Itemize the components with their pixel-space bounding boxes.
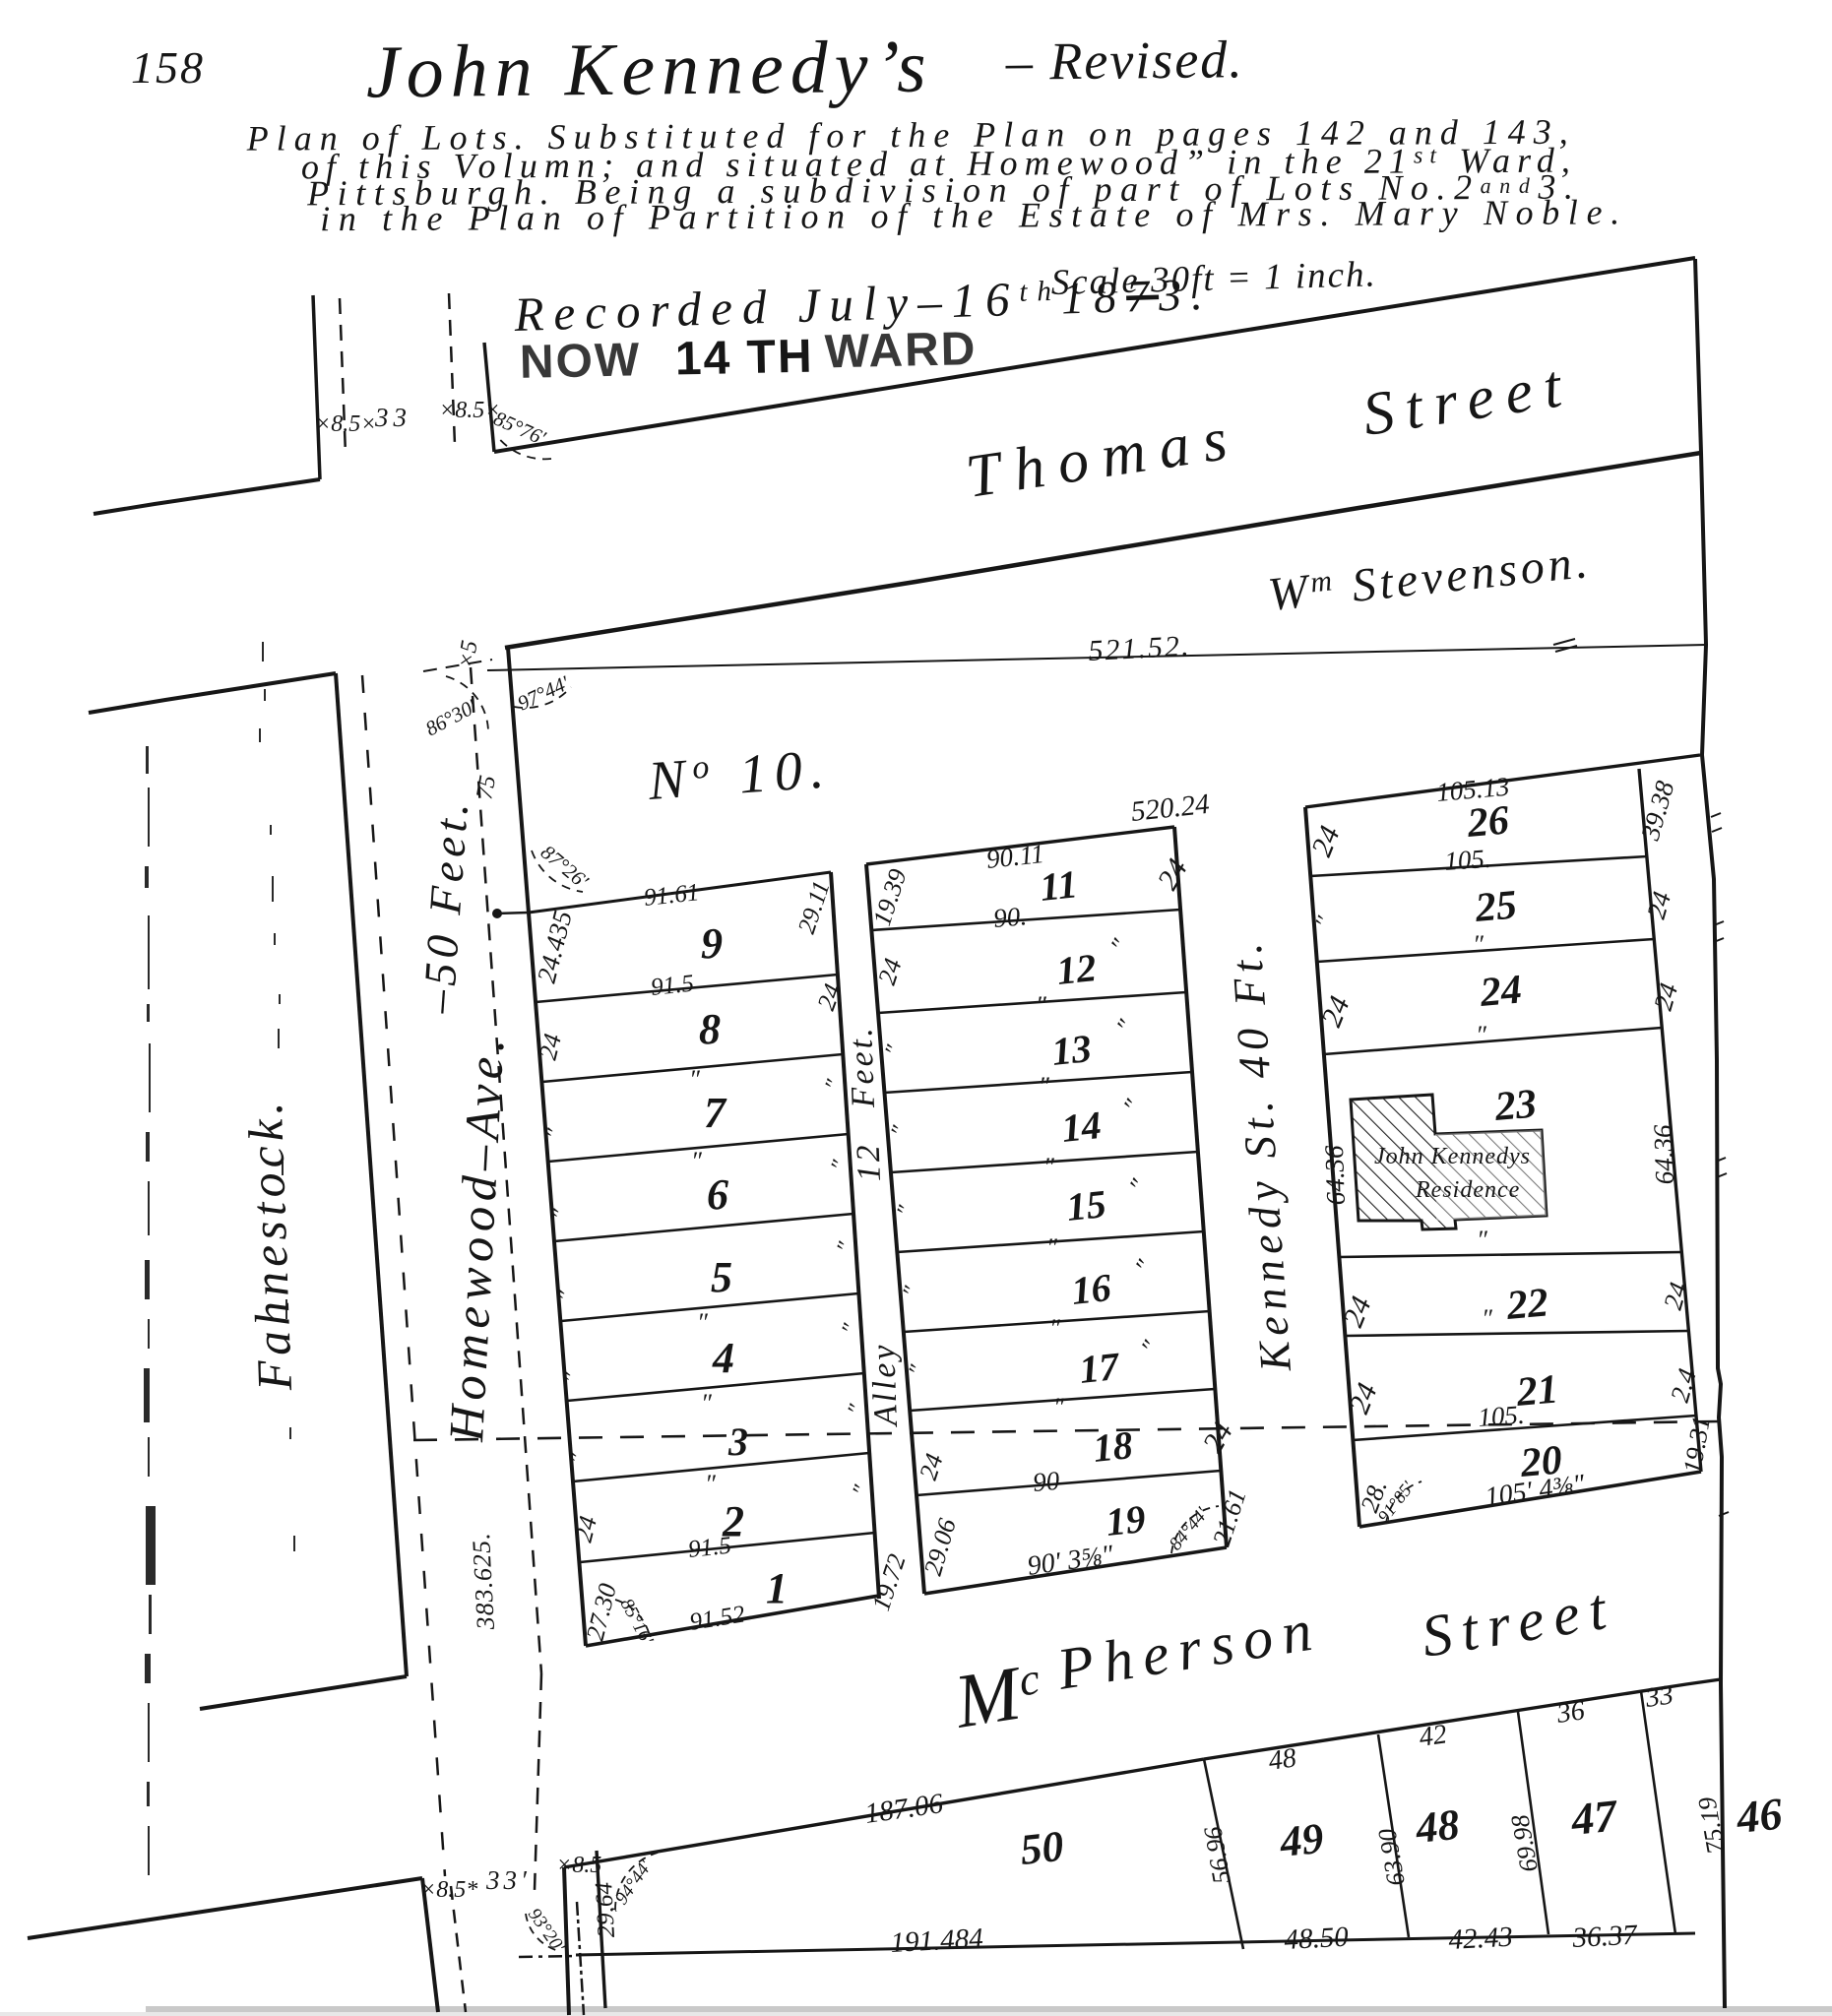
svg-text:×8.5*: ×8.5* — [420, 1877, 477, 1903]
svg-text:3: 3 — [727, 1419, 748, 1464]
svg-text:105.: 105. — [1477, 1400, 1525, 1432]
svg-text:33: 33 — [1643, 1679, 1675, 1714]
svg-text:158: 158 — [131, 42, 205, 93]
svg-text:90.: 90. — [992, 901, 1028, 933]
svg-text:5: 5 — [711, 1253, 732, 1301]
svg-text:17: 17 — [1077, 1344, 1122, 1392]
svg-text:×8.5×: ×8.5× — [315, 411, 376, 437]
svg-text:48: 48 — [1267, 1742, 1298, 1777]
svg-text:90.11: 90.11 — [984, 839, 1045, 874]
svg-text:46: 46 — [1734, 1788, 1785, 1843]
svg-text:13: 13 — [1049, 1026, 1093, 1074]
svg-text:1: 1 — [766, 1564, 788, 1612]
svg-text:33′: 33′ — [485, 1865, 531, 1895]
svg-text:John Kennedy’s: John Kennedy’s — [365, 26, 933, 114]
svg-text:383.625.: 383.625. — [467, 1532, 500, 1631]
svg-text:14: 14 — [1059, 1102, 1103, 1151]
svg-text:NOW: NOW — [519, 334, 641, 389]
svg-text:47: 47 — [1568, 1790, 1621, 1845]
svg-text:36: 36 — [1554, 1695, 1587, 1730]
svg-text:42.43: 42.43 — [1448, 1921, 1514, 1956]
svg-text:36.37: 36.37 — [1571, 1920, 1639, 1955]
svg-text:26: 26 — [1465, 797, 1511, 847]
svg-text:48: 48 — [1413, 1800, 1462, 1853]
svg-text:″: ″ — [1046, 1233, 1058, 1262]
svg-text:16: 16 — [1069, 1265, 1112, 1313]
svg-text:49: 49 — [1277, 1814, 1326, 1866]
svg-text:John Kennedys: John Kennedys — [1374, 1144, 1531, 1169]
svg-text:Fahnestock.: Fahnestock. — [237, 1097, 302, 1393]
svg-text:″: ″ — [1053, 1393, 1065, 1421]
svg-text:4: 4 — [712, 1334, 734, 1382]
svg-text:″: ″ — [1482, 1304, 1493, 1333]
svg-text:″: ″ — [705, 1470, 717, 1498]
svg-text:Alley: Alley — [865, 1342, 905, 1428]
svg-text:22: 22 — [1504, 1280, 1550, 1329]
svg-text:″: ″ — [701, 1389, 713, 1417]
svg-text:25: 25 — [1473, 882, 1519, 931]
svg-text:×5: ×5 — [453, 639, 483, 670]
svg-text:″: ″ — [1473, 930, 1485, 959]
svg-text:14 TH: 14 TH — [674, 331, 814, 386]
svg-text:11: 11 — [1038, 861, 1079, 910]
svg-text:″: ″ — [1476, 1021, 1487, 1049]
svg-text:23: 23 — [1492, 1081, 1539, 1130]
svg-text:64.36: 64.36 — [1319, 1145, 1351, 1206]
svg-text:″: ″ — [1043, 1153, 1055, 1181]
svg-text:33: 33 — [374, 403, 411, 432]
svg-text:19: 19 — [1104, 1496, 1147, 1544]
svg-text:9: 9 — [701, 919, 723, 968]
svg-text:191.484: 191.484 — [890, 1922, 984, 1959]
svg-text:50: 50 — [1018, 1822, 1066, 1874]
svg-text:12: 12 — [851, 1142, 888, 1182]
svg-text:6: 6 — [707, 1170, 728, 1219]
svg-text:15: 15 — [1064, 1181, 1107, 1229]
svg-text:″: ″ — [1477, 1226, 1488, 1254]
svg-text:Feet.: Feet. — [843, 1025, 882, 1109]
svg-text:″: ″ — [1049, 1314, 1061, 1343]
svg-text:– Revised.: – Revised. — [1005, 30, 1245, 92]
svg-text:42: 42 — [1418, 1719, 1449, 1753]
svg-text:24: 24 — [1478, 967, 1524, 1016]
svg-text:″: ″ — [691, 1147, 703, 1175]
svg-text:29,64: 29,64 — [591, 1882, 620, 1939]
svg-text:7: 7 — [704, 1089, 727, 1137]
svg-text:48.50: 48.50 — [1284, 1921, 1350, 1956]
svg-text:×8.5×: ×8.5× — [439, 398, 500, 423]
svg-text:521.52.: 521.52. — [1088, 630, 1192, 667]
svg-text:90: 90 — [1032, 1466, 1061, 1497]
svg-text:″: ″ — [1039, 1072, 1050, 1101]
svg-text:″: ″ — [689, 1065, 701, 1094]
svg-text:Scale 30ft = 1 inch.: Scale 30ft = 1 inch. — [1050, 254, 1377, 303]
svg-text:75: 75 — [472, 774, 501, 801]
svg-text:12: 12 — [1054, 945, 1098, 993]
svg-text:8: 8 — [699, 1005, 721, 1053]
svg-text:WARD: WARD — [824, 323, 978, 378]
svg-text:No 10.: No 10. — [646, 738, 834, 812]
svg-text:″: ″ — [697, 1308, 709, 1337]
svg-text:″: ″ — [1036, 991, 1047, 1020]
svg-text:Residence: Residence — [1415, 1177, 1520, 1203]
svg-text:91.5: 91.5 — [650, 971, 695, 1001]
svg-text:105.: 105. — [1443, 844, 1491, 876]
svg-text:91.5: 91.5 — [687, 1533, 732, 1563]
